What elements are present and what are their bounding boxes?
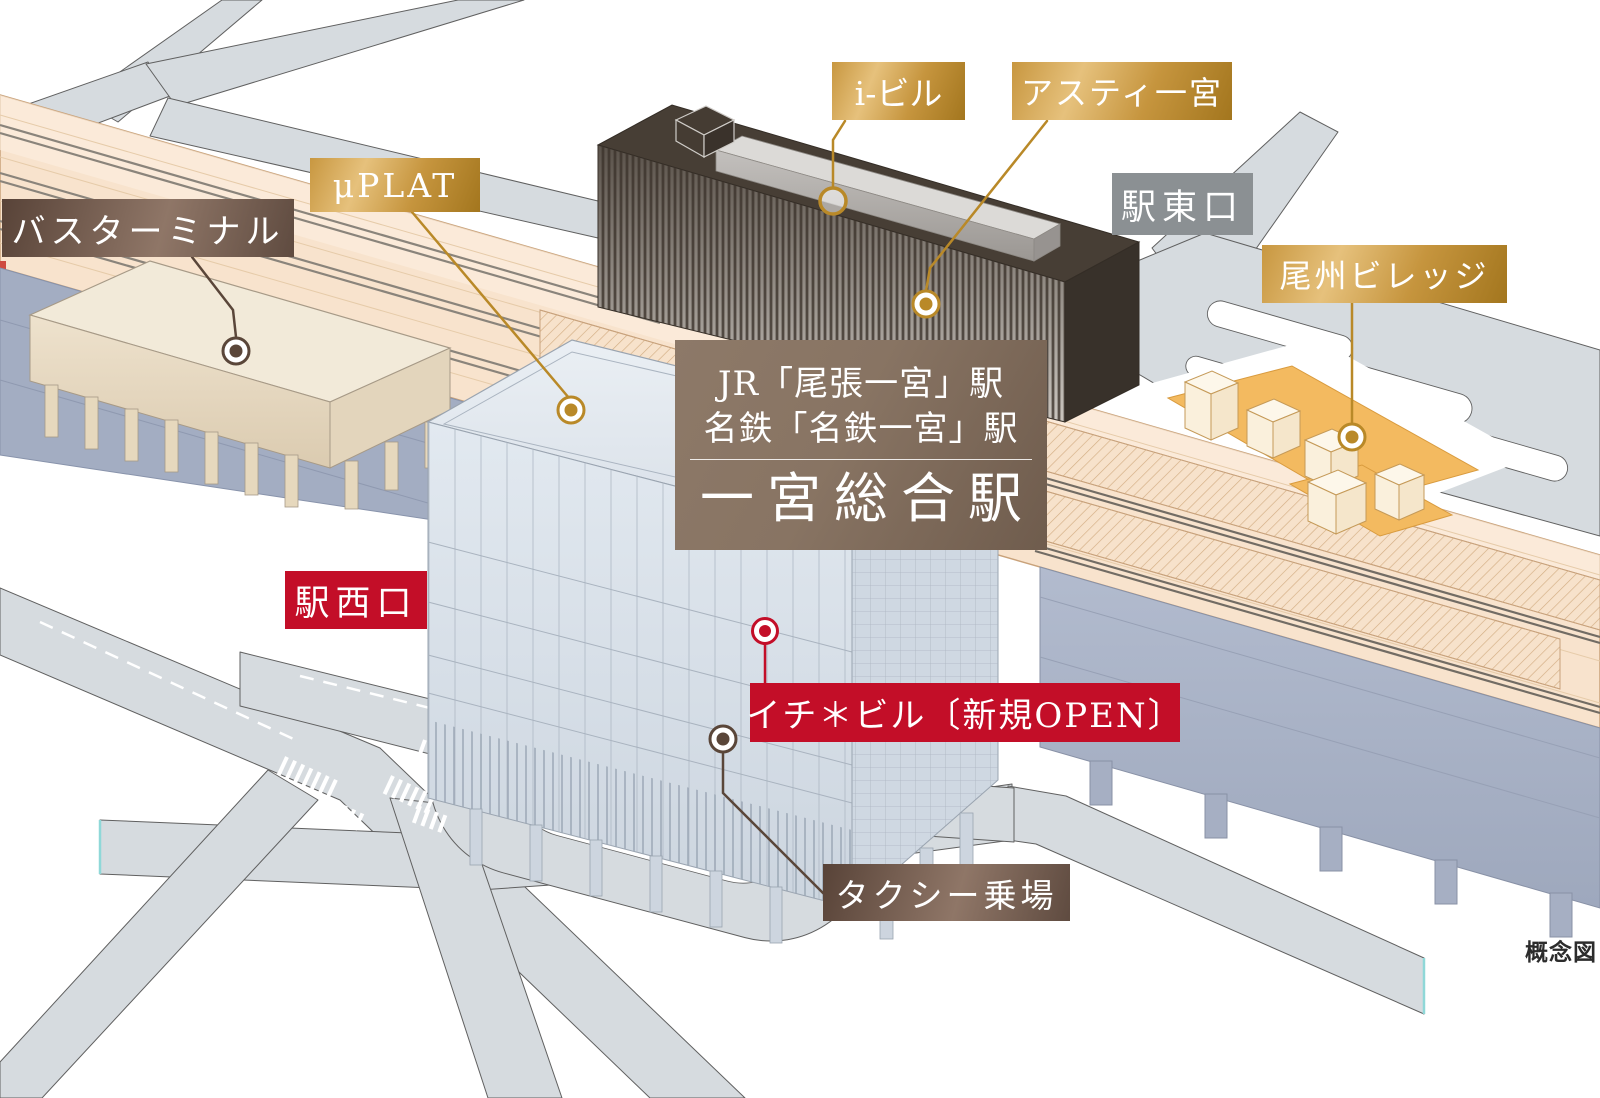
label-east-exit: 駅東口 bbox=[1112, 173, 1253, 235]
station-panel: JR「尾張一宮」駅 名鉄「名鉄一宮」駅 一宮総合駅 bbox=[675, 340, 1047, 550]
jr-station-name: JR「尾張一宮」駅 bbox=[718, 362, 1004, 407]
label-muplat: μPLAT bbox=[310, 158, 480, 212]
station-area-map: バスターミナル μPLAT i-ビル アスティ一宮 駅東口 尾州ビレッジ 駅西口… bbox=[0, 0, 1600, 1098]
meitetsu-station-name: 名鉄「名鉄一宮」駅 bbox=[704, 407, 1019, 452]
label-bishu-village: 尾州ビレッジ bbox=[1262, 245, 1507, 303]
combined-station-name: 一宮総合駅 bbox=[700, 469, 1035, 529]
label-ichi-building: イチ＊ビル〔新規OPEN〕 bbox=[750, 683, 1180, 742]
label-i-building: i-ビル bbox=[832, 62, 965, 120]
panel-divider bbox=[690, 459, 1032, 460]
label-asty-ichinomiya: アスティ一宮 bbox=[1012, 62, 1232, 120]
label-bus-terminal: バスターミナル bbox=[2, 199, 294, 257]
label-west-exit: 駅西口 bbox=[285, 571, 427, 629]
concept-diagram-note: 概念図 bbox=[1495, 933, 1597, 967]
label-taxi-stand: タクシー乗場 bbox=[823, 864, 1070, 921]
